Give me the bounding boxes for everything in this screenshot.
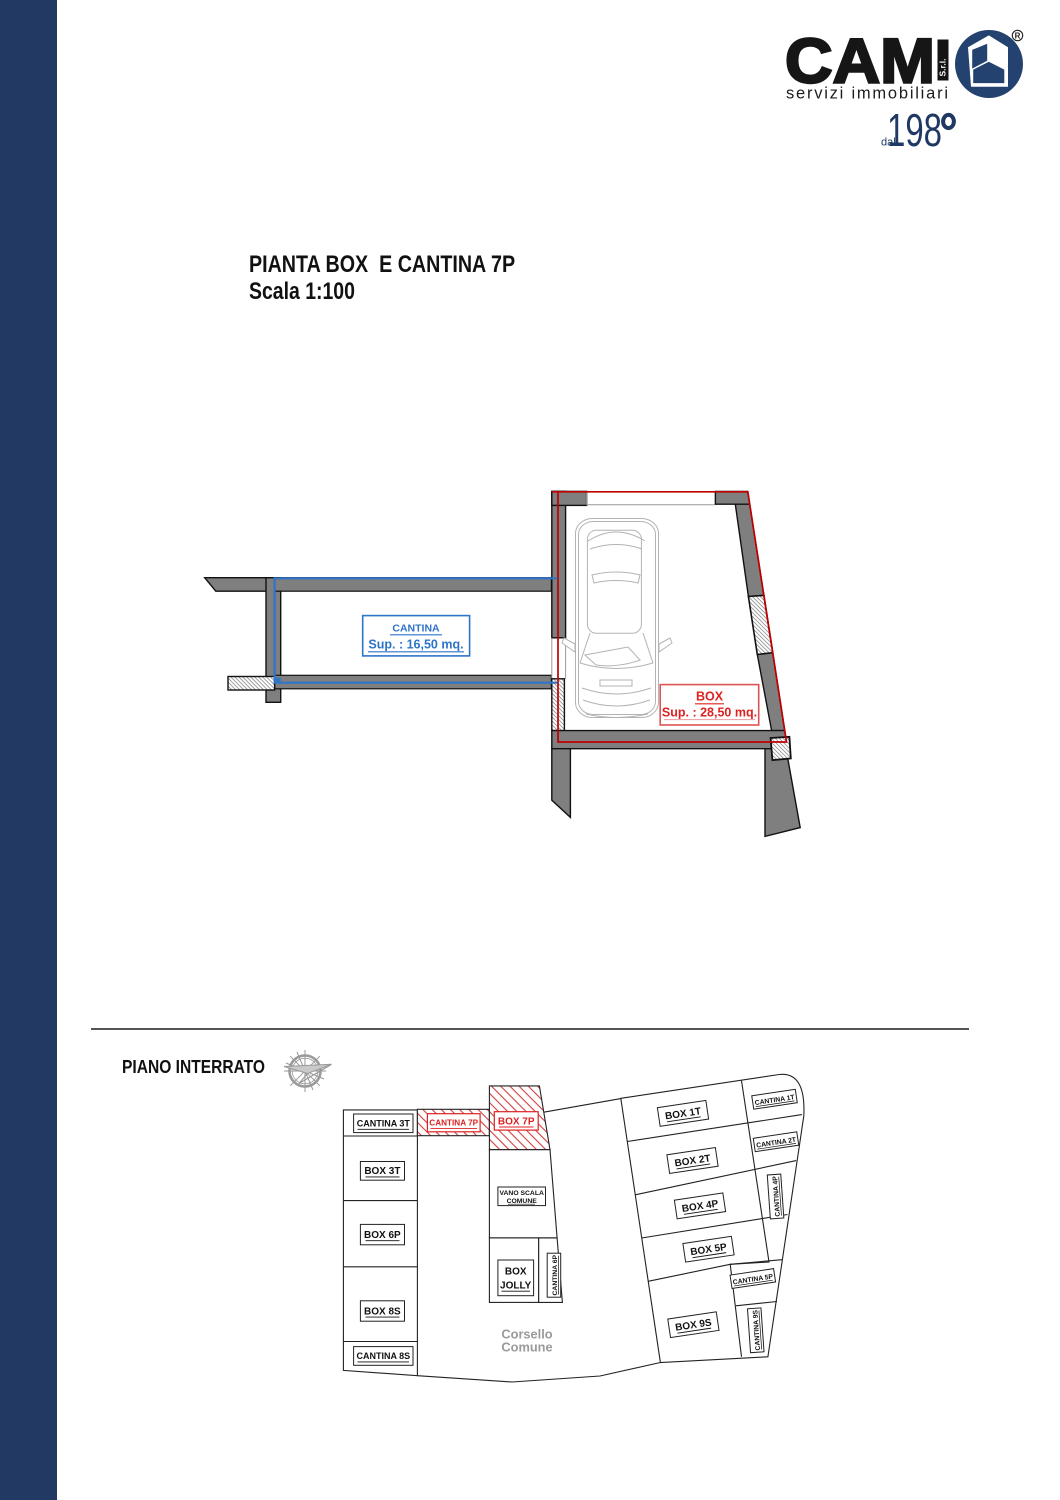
svg-text:VANO SCALA: VANO SCALA <box>499 1190 544 1197</box>
svg-text:COMUNE: COMUNE <box>507 1198 538 1205</box>
svg-text:Comune: Comune <box>501 1340 552 1355</box>
svg-text:Sup. : 16,50 mq.: Sup. : 16,50 mq. <box>368 638 463 652</box>
svg-text:JOLLY: JOLLY <box>500 1281 532 1292</box>
svg-text:CANTINA 6P: CANTINA 6P <box>552 1254 559 1295</box>
svg-text:PIANO INTERRATO: PIANO INTERRATO <box>122 1056 265 1077</box>
svg-text:BOX 3T: BOX 3T <box>364 1166 400 1177</box>
svg-text:CANTINA 7P: CANTINA 7P <box>429 1119 478 1128</box>
svg-text:CANTINA 3T: CANTINA 3T <box>357 1119 411 1129</box>
svg-text:BOX 8S: BOX 8S <box>364 1306 401 1317</box>
svg-text:BOX 6P: BOX 6P <box>364 1230 401 1241</box>
svg-text:CANTINA 8S: CANTINA 8S <box>356 1351 410 1361</box>
svg-text:BOX: BOX <box>696 690 724 704</box>
svg-text:BOX 7P: BOX 7P <box>498 1116 535 1127</box>
svg-text:Sup. : 28,50 mq.: Sup. : 28,50 mq. <box>662 706 757 720</box>
svg-text:CANTINA: CANTINA <box>392 623 440 635</box>
svg-text:BOX: BOX <box>505 1267 527 1278</box>
